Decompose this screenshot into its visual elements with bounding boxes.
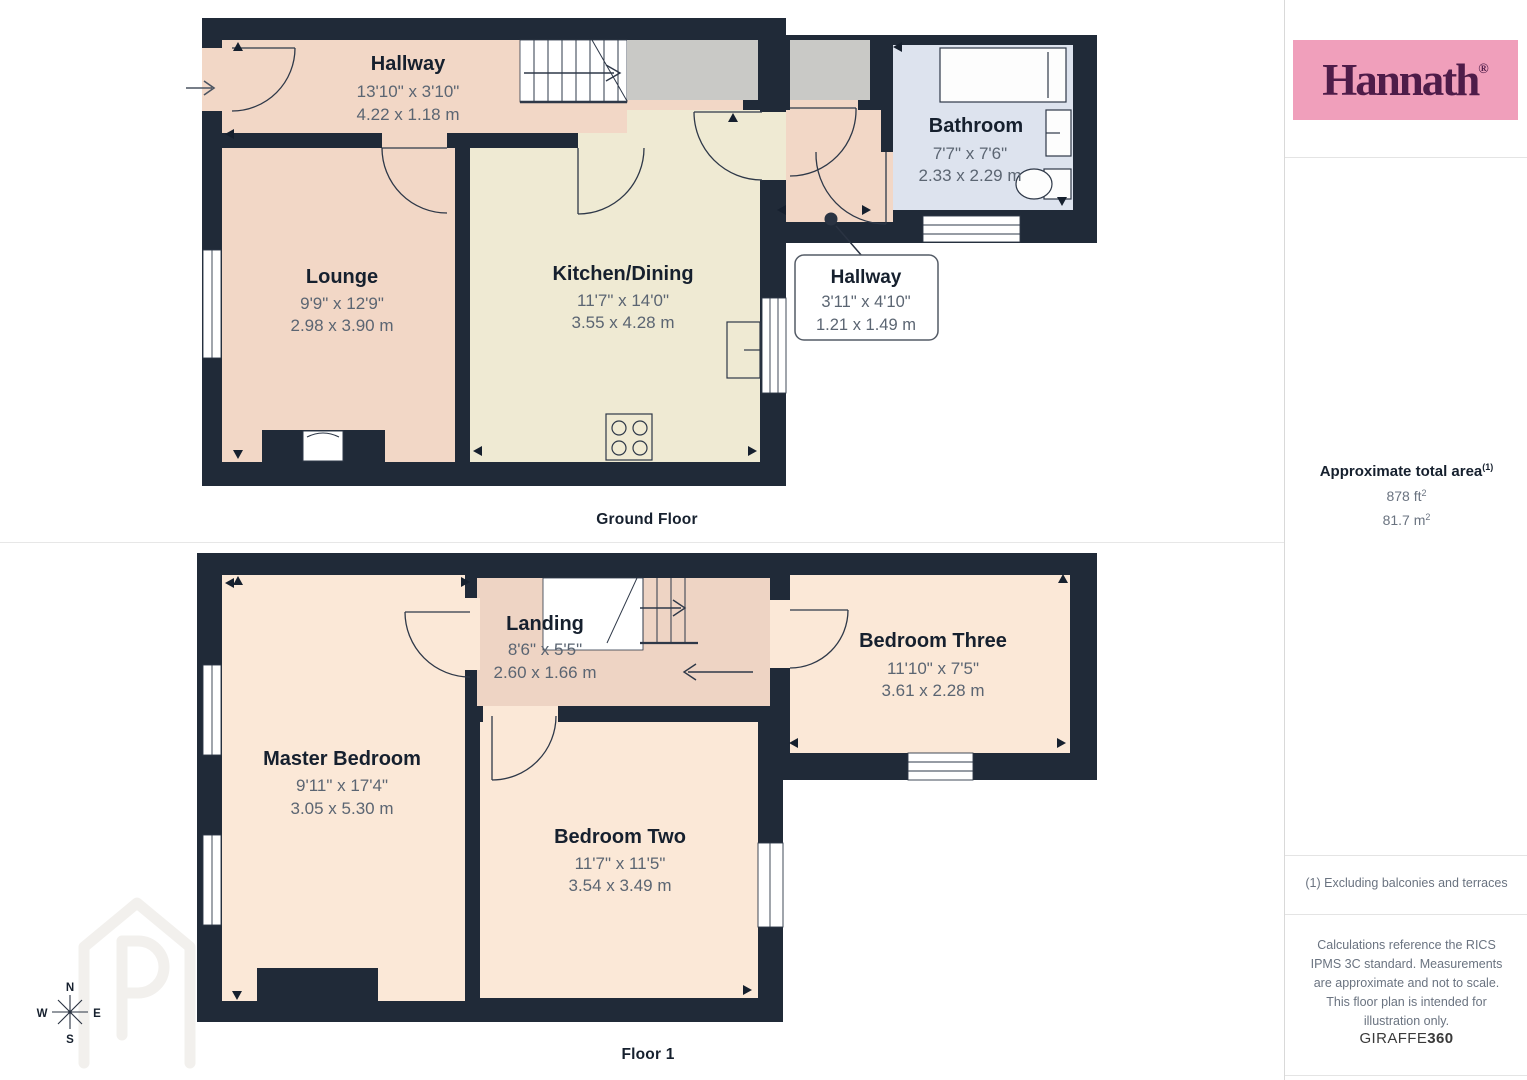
label-hallway-ground: Hallway 13'10" x 3'10" 4.22 x 1.18 m bbox=[356, 53, 459, 124]
room-dims-metric: 2.33 x 2.29 m bbox=[918, 166, 1021, 185]
room-dims-metric: 2.60 x 1.66 m bbox=[493, 663, 596, 682]
room-hallway-small bbox=[786, 110, 881, 222]
room-name: Master Bedroom bbox=[263, 748, 421, 770]
room-dims-imperial: 9'9" x 12'9" bbox=[300, 294, 384, 313]
room-name: Lounge bbox=[306, 266, 378, 288]
info-sidebar: Hannath® Approximate total area(1) 878 f… bbox=[1284, 0, 1527, 1080]
floorplan-page: Hallway 3'11" x 4'10" 1.21 x 1.49 m Hall… bbox=[0, 0, 1527, 1080]
giraffe360-brand: GIRAFFE360 bbox=[1285, 1030, 1527, 1047]
lounge-door-opening bbox=[382, 133, 447, 148]
kitchen-door-opening bbox=[578, 133, 638, 148]
floor-1-label: Floor 1 bbox=[621, 1046, 674, 1063]
room-name: Bathroom bbox=[929, 115, 1023, 137]
compass-west-label: W bbox=[37, 1008, 48, 1020]
lounge-fireplace bbox=[262, 430, 385, 462]
area-meters-value: 81.7 m2 bbox=[1285, 512, 1527, 528]
ground-floor-plan: Hallway 3'11" x 4'10" 1.21 x 1.49 m Hall… bbox=[0, 0, 1284, 543]
callout-dims-imperial: 3'11" x 4'10" bbox=[821, 293, 910, 311]
bedroom-three-window bbox=[908, 753, 973, 780]
hannath-brand-text: Hannath® bbox=[1322, 58, 1489, 103]
hannath-logo: Hannath® bbox=[1293, 40, 1518, 120]
area-feet-value: 878 ft2 bbox=[1285, 488, 1527, 504]
master-window-lower bbox=[203, 835, 221, 925]
room-dims-imperial: 9'11" x 17'4" bbox=[296, 776, 388, 795]
room-dims-imperial: 8'6" x 5'5" bbox=[508, 640, 582, 659]
rics-disclaimer: Calculations reference the RICS IPMS 3C … bbox=[1302, 936, 1511, 1031]
total-area-block: Approximate total area(1) 878 ft2 81.7 m… bbox=[1285, 462, 1527, 528]
stairs-ground bbox=[520, 40, 627, 102]
room-dims-metric: 4.22 x 1.18 m bbox=[356, 105, 459, 124]
kitchen-sink-icon bbox=[727, 322, 760, 378]
room-name: Kitchen/Dining bbox=[552, 263, 693, 285]
sidebar-divider bbox=[1285, 1075, 1527, 1076]
label-landing: Landing 8'6" x 5'5" 2.60 x 1.66 m bbox=[493, 613, 596, 682]
area-title: Approximate total area(1) bbox=[1285, 462, 1527, 480]
room-dims-imperial: 13'10" x 3'10" bbox=[357, 82, 460, 101]
toilet-icon bbox=[1016, 169, 1071, 199]
bathtub-icon bbox=[940, 48, 1066, 102]
master-window-upper bbox=[203, 665, 221, 755]
compass-north-label: N bbox=[66, 982, 74, 994]
sidebar-divider bbox=[1285, 855, 1527, 856]
room-dims-imperial: 7'7" x 7'6" bbox=[933, 144, 1007, 163]
kitchen-wing-opening bbox=[760, 112, 786, 180]
room-dims-imperial: 11'7" x 14'0" bbox=[577, 291, 669, 310]
footnote-marker: (1) bbox=[1482, 462, 1493, 472]
compass-icon: N S W E bbox=[37, 982, 102, 1046]
room-dims-metric: 3.55 x 4.28 m bbox=[571, 313, 674, 332]
room-dims-metric: 3.54 x 3.49 m bbox=[568, 876, 671, 895]
callout-anchor-dot bbox=[825, 213, 838, 226]
label-lounge: Lounge 9'9" x 12'9" 2.98 x 3.90 m bbox=[290, 266, 393, 335]
bathroom-sink-icon bbox=[1046, 110, 1071, 156]
understairs-gray-area bbox=[627, 40, 758, 100]
wing-gray-area bbox=[790, 40, 870, 100]
bedroom-two-door-opening bbox=[483, 706, 558, 722]
room-dims-imperial: 11'7" x 11'5" bbox=[575, 854, 666, 873]
room-dims-metric: 3.05 x 5.30 m bbox=[290, 799, 393, 818]
room-dims-metric: 2.98 x 3.90 m bbox=[290, 316, 393, 335]
compass-east-label: E bbox=[93, 1008, 101, 1020]
callout-dims-metric: 1.21 x 1.49 m bbox=[816, 316, 916, 334]
room-dims-imperial: 11'10" x 7'5" bbox=[887, 659, 979, 678]
bathroom-window bbox=[923, 216, 1020, 242]
master-chimney bbox=[257, 968, 378, 1001]
giraffe360-house-watermark bbox=[84, 903, 190, 1063]
balconies-footnote: (1) Excluding balconies and terraces bbox=[1285, 876, 1527, 890]
room-dims-metric: 3.61 x 2.28 m bbox=[881, 681, 984, 700]
compass-south-label: S bbox=[66, 1034, 74, 1046]
kitchen-window bbox=[762, 298, 786, 393]
ground-floor-label: Ground Floor bbox=[596, 511, 697, 528]
room-name: Landing bbox=[506, 613, 584, 635]
bathroom-door-opening bbox=[881, 152, 893, 222]
callout-room-name: Hallway bbox=[831, 267, 902, 288]
bedroom-two-window bbox=[758, 843, 783, 927]
entrance-opening bbox=[202, 48, 222, 111]
floor-1-plan: Master Bedroom 9'11" x 17'4" 3.05 x 5.30… bbox=[0, 543, 1284, 1080]
bedroom-three-door-opening bbox=[770, 600, 790, 668]
sidebar-divider bbox=[1285, 157, 1527, 158]
room-name: Bedroom Two bbox=[554, 826, 686, 848]
sidebar-divider bbox=[1285, 914, 1527, 915]
master-door-opening bbox=[465, 598, 480, 670]
room-name: Hallway bbox=[371, 53, 446, 75]
lounge-window bbox=[203, 250, 221, 358]
registered-mark-icon: ® bbox=[1478, 62, 1488, 77]
room-name: Bedroom Three bbox=[859, 630, 1007, 652]
